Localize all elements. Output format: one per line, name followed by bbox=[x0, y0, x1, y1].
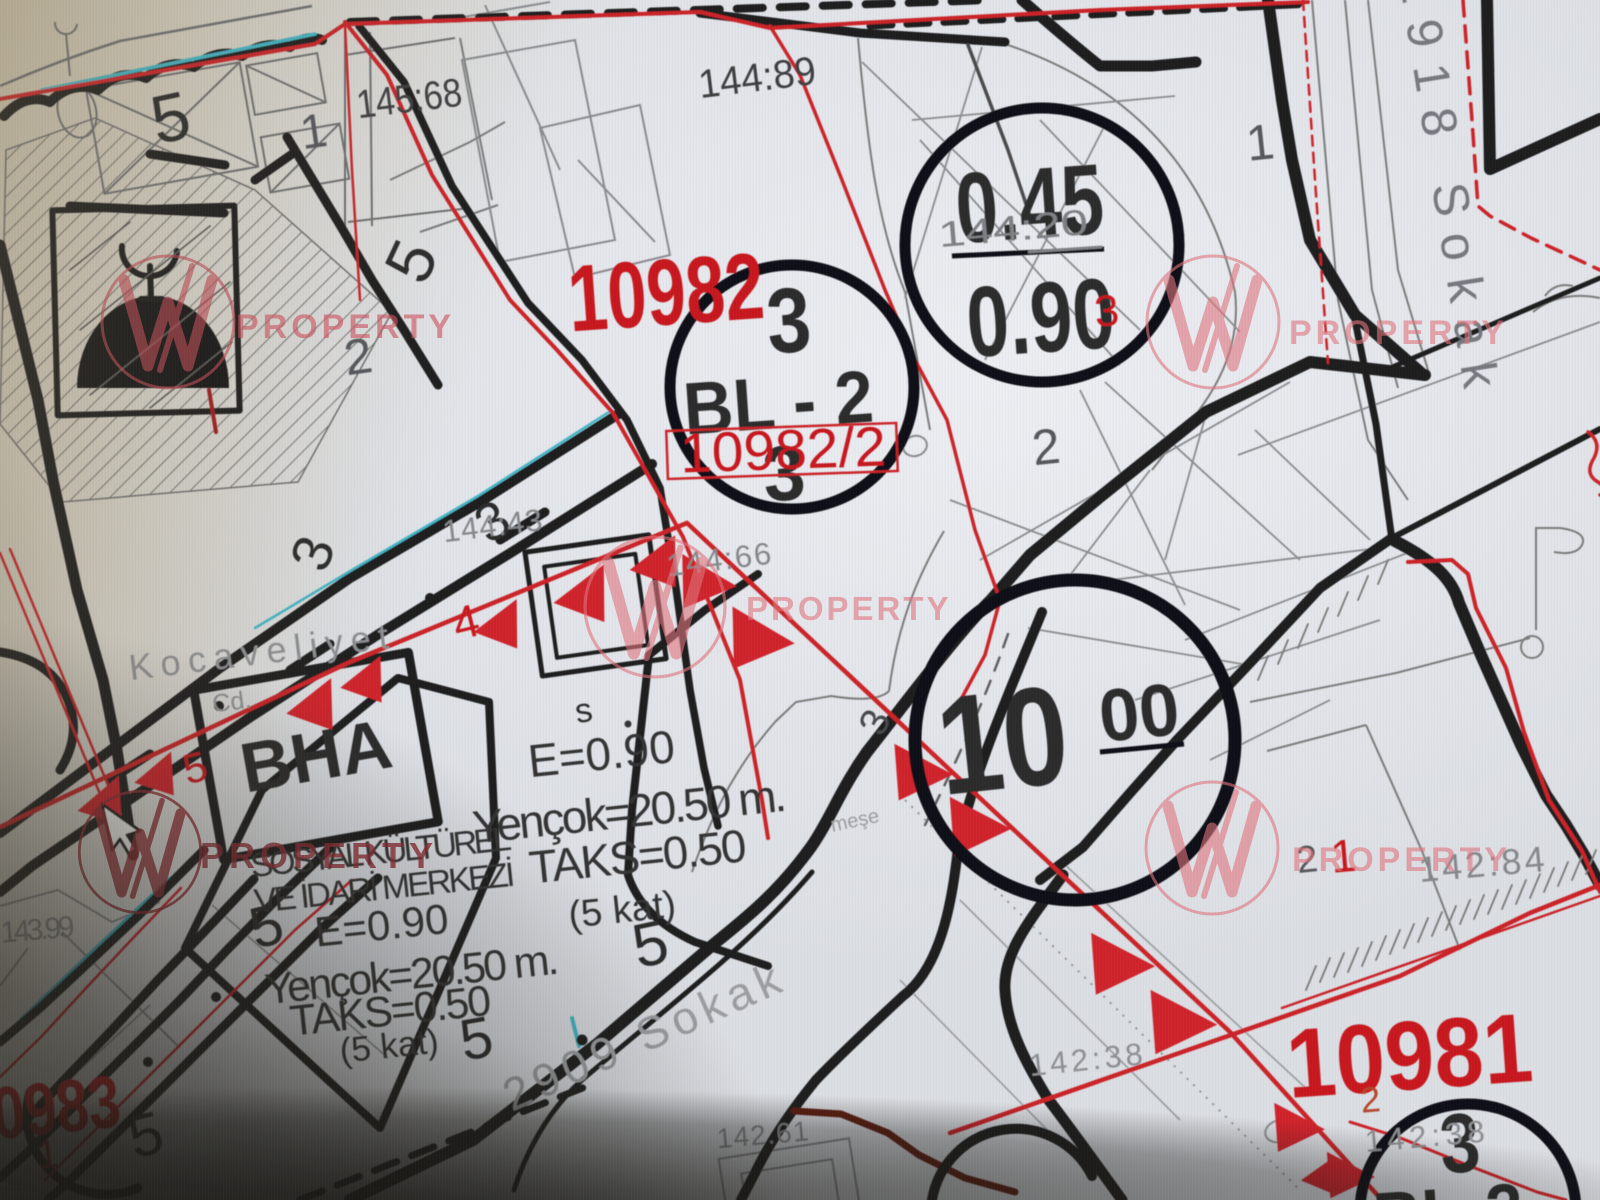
svg-text:5: 5 bbox=[121, 1098, 170, 1171]
svg-text:143.99: 143.99 bbox=[0, 910, 76, 949]
svg-text:E=0.90: E=0.90 bbox=[525, 720, 677, 787]
svg-text:3: 3 bbox=[277, 528, 347, 579]
svg-text:Cd.: Cd. bbox=[211, 686, 253, 719]
svg-text:5: 5 bbox=[370, 229, 453, 294]
svg-text:10981: 10981 bbox=[1283, 992, 1536, 1119]
svg-text:10: 10 bbox=[930, 655, 1076, 825]
svg-text:PROPERTY: PROPERTY bbox=[236, 308, 455, 346]
svg-text:PROPERTY: PROPERTY bbox=[200, 835, 438, 876]
svg-text:2: 2 bbox=[1029, 418, 1063, 477]
svg-text:PROPERTY: PROPERTY bbox=[1289, 314, 1508, 352]
svg-text:4: 4 bbox=[447, 594, 484, 651]
svg-text:1: 1 bbox=[297, 104, 331, 160]
svg-text:10983: 10983 bbox=[0, 1059, 124, 1158]
svg-text:2: 2 bbox=[1359, 1078, 1383, 1121]
svg-text:1: 1 bbox=[1243, 113, 1277, 172]
svg-text:s: s bbox=[572, 691, 595, 731]
svg-text:3: 3 bbox=[763, 269, 814, 374]
svg-text:142:38: 142:38 bbox=[1027, 1036, 1144, 1083]
svg-text:3: 3 bbox=[1092, 286, 1121, 337]
svg-text:BL-2: BL-2 bbox=[1371, 1169, 1526, 1200]
svg-text:10982: 10982 bbox=[565, 233, 768, 351]
svg-text:BHA: BHA bbox=[235, 704, 398, 807]
svg-text:32s: 32s bbox=[4, 1175, 31, 1194]
svg-text:142.61: 142.61 bbox=[715, 1115, 809, 1154]
svg-text:PROPERTY: PROPERTY bbox=[1292, 841, 1511, 879]
svg-text:1: 1 bbox=[34, 1132, 61, 1178]
svg-text:PROPERTY: PROPERTY bbox=[746, 590, 952, 627]
svg-text:144:89: 144:89 bbox=[696, 49, 818, 107]
svg-text:10982/2: 10982/2 bbox=[679, 414, 887, 484]
